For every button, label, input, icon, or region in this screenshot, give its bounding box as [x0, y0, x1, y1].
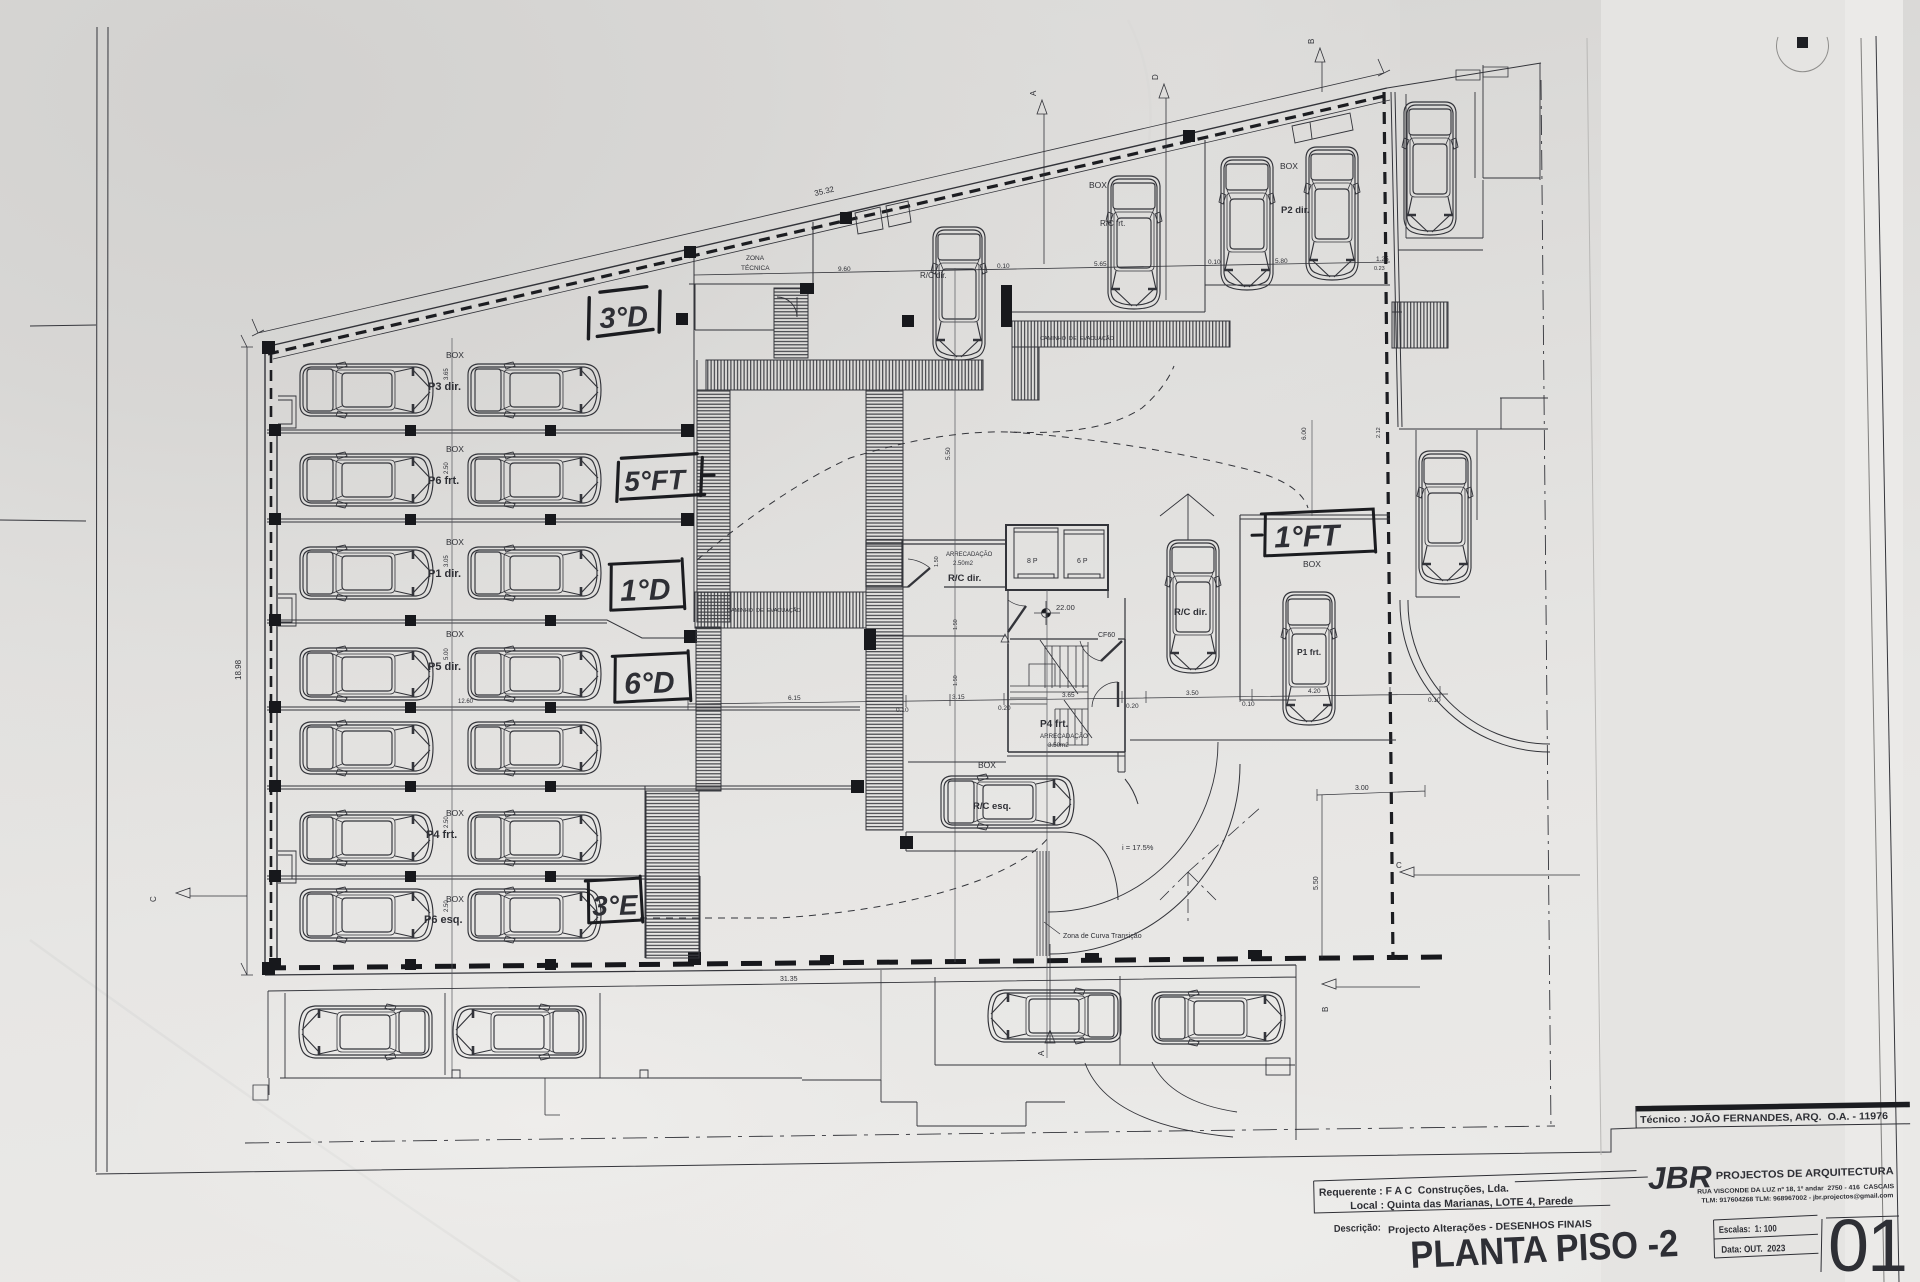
svg-text:R/C esq.: R/C esq.	[973, 801, 1011, 812]
svg-text:R/C frt.: R/C frt.	[1100, 219, 1125, 228]
svg-text:8 P: 8 P	[1027, 558, 1038, 565]
svg-text:5.50: 5.50	[1313, 876, 1320, 890]
svg-text:1°FT: 1°FT	[1274, 519, 1343, 554]
svg-text:CAMINHO DE EVACUAÇÃO: CAMINHO DE EVACUAÇÃO	[1040, 335, 1115, 342]
svg-text:1.50: 1.50	[953, 675, 959, 686]
svg-text:5°FT: 5°FT	[624, 464, 689, 497]
svg-text:P3 dir.: P3 dir.	[428, 381, 461, 393]
svg-text:22.00: 22.00	[1056, 603, 1075, 612]
svg-text:C: C	[1396, 861, 1402, 870]
svg-text:2.12: 2.12	[1376, 427, 1382, 438]
svg-text:12.60: 12.60	[458, 699, 474, 705]
svg-text:BOX: BOX	[446, 350, 464, 360]
svg-text:BOX: BOX	[1303, 559, 1321, 569]
svg-text:0.20: 0.20	[998, 705, 1011, 712]
svg-text:BOX: BOX	[446, 629, 464, 639]
svg-text:0.10: 0.10	[1428, 697, 1441, 704]
svg-text:D: D	[1151, 74, 1160, 80]
svg-text:B: B	[1307, 39, 1316, 44]
svg-text:Escalas: 1: 100: Escalas: 1: 100	[1719, 1223, 1777, 1236]
svg-text:0.10: 0.10	[896, 707, 909, 714]
svg-text:0.20: 0.20	[1126, 703, 1139, 710]
svg-text:2.50: 2.50	[444, 900, 450, 912]
svg-text:Zona de Curva Transição: Zona de Curva Transição	[1063, 933, 1142, 940]
svg-text:P6 esq.: P6 esq.	[424, 914, 463, 926]
svg-text:1.50: 1.50	[934, 556, 940, 567]
svg-text:i = 17.5%: i = 17.5%	[1122, 843, 1154, 852]
svg-text:BOX: BOX	[978, 760, 996, 770]
svg-text:5.65: 5.65	[1094, 261, 1107, 268]
svg-text:5.50: 5.50	[945, 447, 952, 460]
svg-text:5.00: 5.00	[444, 648, 450, 660]
svg-text:C: C	[149, 896, 158, 902]
svg-text:1.50: 1.50	[953, 619, 959, 630]
svg-text:18.98: 18.98	[234, 659, 243, 680]
svg-text:Descrição:: Descrição:	[1334, 1223, 1381, 1235]
svg-text:3.65: 3.65	[444, 368, 450, 380]
svg-text:P5 dir.: P5 dir.	[428, 661, 461, 673]
svg-text:3.15: 3.15	[952, 694, 965, 701]
svg-text:6°D: 6°D	[624, 666, 675, 701]
svg-text:2.50: 2.50	[444, 816, 450, 828]
svg-text:ARRECADAÇÃO: ARRECADAÇÃO	[946, 551, 993, 558]
svg-text:P4 frt.: P4 frt.	[426, 829, 457, 841]
svg-text:R/C dir.: R/C dir.	[1174, 607, 1207, 618]
svg-text:B: B	[1321, 1007, 1330, 1012]
svg-text:3.50: 3.50	[1186, 690, 1199, 697]
svg-text:P1 frt.: P1 frt.	[1297, 647, 1321, 657]
svg-text:9.60: 9.60	[838, 266, 851, 273]
svg-text:R/C dir.: R/C dir.	[920, 271, 947, 280]
svg-text:Data: OUT. 2023: Data: OUT. 2023	[1721, 1243, 1785, 1256]
svg-text:2.50: 2.50	[444, 462, 450, 474]
svg-text:P6 frt.: P6 frt.	[428, 475, 459, 487]
svg-text:0.10: 0.10	[1208, 259, 1221, 266]
svg-text:3°D: 3°D	[599, 301, 649, 336]
svg-text:P4 frt.: P4 frt.	[1040, 719, 1069, 730]
svg-text:3.50m2: 3.50m2	[1048, 742, 1069, 749]
svg-text:P1 dir.: P1 dir.	[428, 568, 461, 580]
svg-text:0.23: 0.23	[1374, 266, 1385, 272]
svg-text:4.20: 4.20	[1308, 688, 1321, 695]
svg-text:CAMINHO DE EVACUAÇÃO: CAMINHO DE EVACUAÇÃO	[727, 607, 802, 614]
svg-text:3.65: 3.65	[1062, 692, 1075, 699]
svg-text:R/C dir.: R/C dir.	[948, 573, 981, 584]
svg-text:6 P: 6 P	[1077, 558, 1088, 565]
svg-text:BOX: BOX	[446, 537, 464, 547]
svg-text:2.50m2: 2.50m2	[953, 561, 974, 567]
svg-text:P2 dir.: P2 dir.	[1281, 205, 1310, 216]
svg-text:ZONA: ZONA	[746, 255, 765, 262]
svg-text:0.10: 0.10	[1242, 701, 1255, 708]
svg-text:6.00: 6.00	[1301, 427, 1308, 440]
svg-text:A: A	[1037, 1050, 1046, 1056]
svg-text:3.00: 3.00	[1355, 785, 1369, 792]
svg-text:BOX: BOX	[1280, 161, 1298, 171]
svg-text:3°E: 3°E	[592, 889, 640, 922]
svg-text:1°D: 1°D	[620, 573, 671, 608]
svg-text:0.10: 0.10	[997, 263, 1010, 270]
svg-text:31.35: 31.35	[780, 976, 798, 983]
svg-text:BOX: BOX	[1089, 180, 1107, 190]
svg-text:CF60: CF60	[1098, 632, 1115, 639]
svg-text:BOX: BOX	[446, 444, 464, 454]
svg-text:TÉCNICA: TÉCNICA	[741, 263, 770, 272]
svg-text:6.15: 6.15	[788, 695, 801, 702]
svg-text:3.05: 3.05	[444, 555, 450, 567]
svg-text:5.80: 5.80	[1275, 258, 1288, 265]
svg-text:A: A	[1029, 90, 1038, 96]
